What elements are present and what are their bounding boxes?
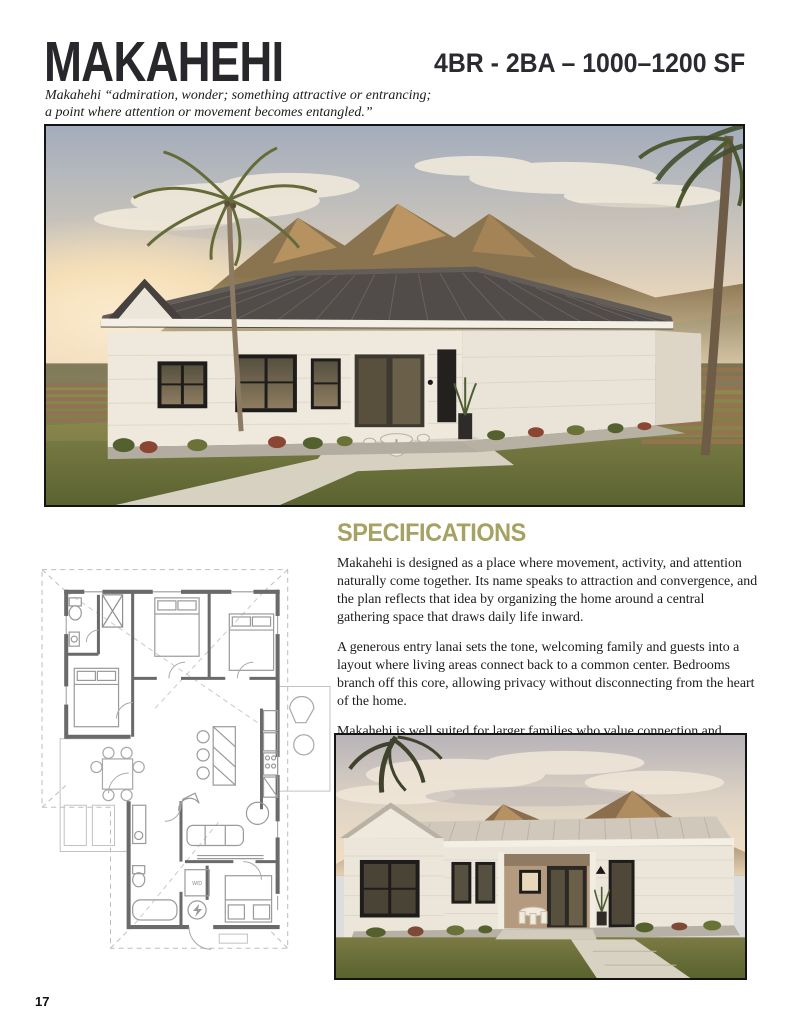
lanai-chair-table [290,697,314,755]
living-room [179,793,269,858]
bed-bedroom-2 [155,598,199,656]
floor-plan-drawing: W/D [36,556,334,982]
specifications-heading: SPECIFICATIONS [337,519,733,548]
bed-bedroom-3 [74,668,118,726]
bathroom-1 [69,598,81,646]
entry-door [437,349,456,422]
spec-paragraph-1: Makahehi is designed as a place where mo… [337,555,758,627]
sliding-glass-door [351,351,429,429]
lanai-outlines [60,686,330,851]
secondary-photo-rendering [336,735,745,978]
plan-subtitle: Makahehi “admiration, wonder; something … [45,88,431,121]
spec-paragraph-2: A generous entry lanai sets the tone, we… [337,639,758,711]
secondary-photo [334,733,747,980]
brochure-page: MAKAHEHI 4BR - 2BA – 1000–1200 SF Makahe… [0,0,788,1024]
entry-porch [498,852,596,929]
subtitle-line-2: a point where attention or movement beco… [45,105,373,120]
lawn [336,937,745,978]
entry-step [219,934,247,943]
window-left [360,860,420,918]
washer-dryer-label: W/D [192,881,202,887]
dining-set [91,747,144,800]
closet [102,595,122,627]
kitchen [197,711,278,798]
floor-plan: W/D [36,556,334,982]
plan-title: MAKAHEHI [44,34,283,91]
wall-sconce [428,380,433,385]
house [340,802,740,942]
bed-bedroom-1 [229,614,273,670]
plan-spec-summary: 4BR - 2BA – 1000–1200 SF [434,50,745,77]
interior-walls [66,592,277,927]
bed-bedroom-4 [225,876,271,922]
subtitle-line-1: Makahehi “admiration, wonder; something … [45,88,431,103]
glass-door-right [609,860,635,927]
page-number: 17 [35,994,49,1009]
hero-photo-rendering [46,126,743,505]
hero-photo [44,124,745,507]
